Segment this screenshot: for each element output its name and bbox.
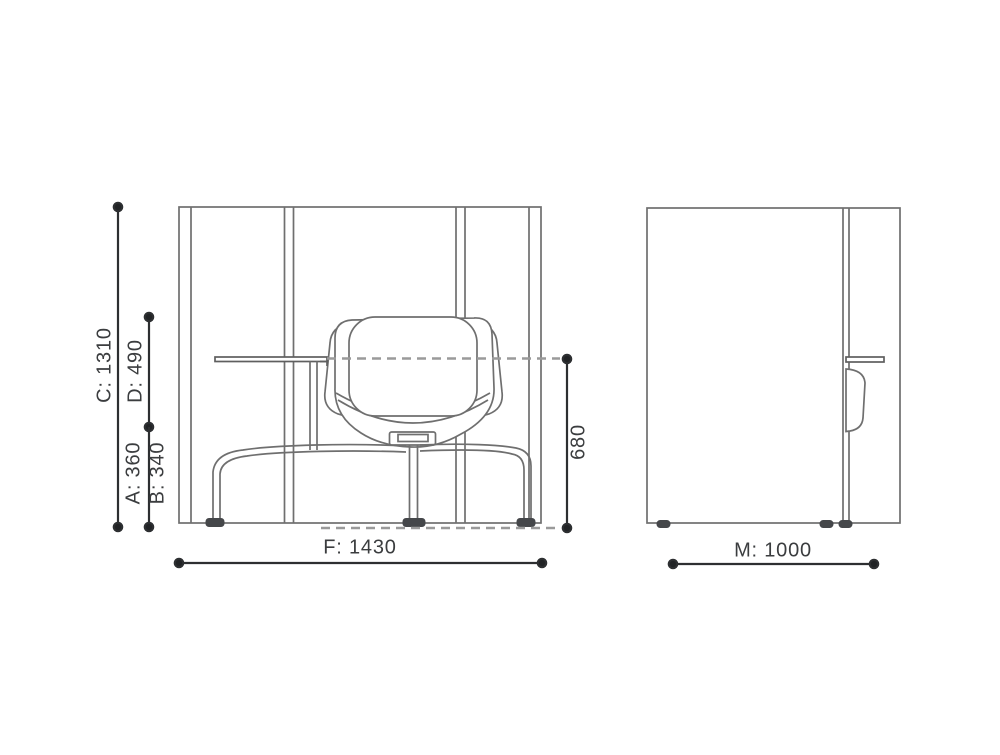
front-view-drawing [179,207,541,527]
side-view-drawing [647,208,900,528]
dimension-label-B: B: 340 [147,442,170,505]
dimension-line-F [175,559,546,567]
technical-drawing-page: C: 1310 D: 490 A: 360 B: 340 680 F: 1430… [0,0,1000,755]
dimension-label-F: F: 1430 [323,537,396,560]
pod-foot-pads [657,521,852,528]
table-side-drawing [846,357,884,432]
pod-frame-side [647,208,900,523]
dimension-label-M: M: 1000 [734,540,812,563]
dimension-label-A: A: 360 [123,442,146,505]
dimension-label-D: D: 490 [125,339,148,403]
table-front-drawing [215,357,327,450]
dimension-drawing-svg [0,0,1000,755]
dimension-lines [114,203,878,568]
dimension-label-C: C: 1310 [94,327,117,403]
chair-front-drawing [206,317,535,527]
dimension-label-680: 680 [568,424,591,460]
